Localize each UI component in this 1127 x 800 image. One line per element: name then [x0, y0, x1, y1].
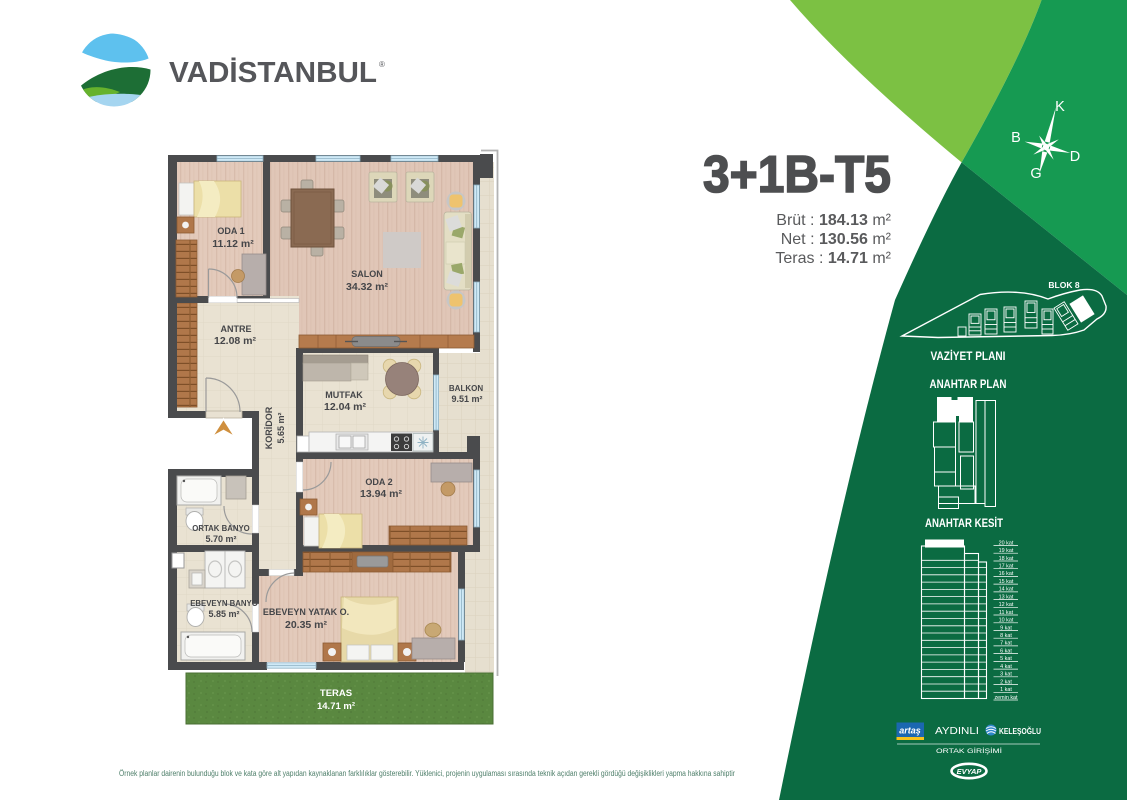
svg-text:ANTRE: ANTRE: [221, 324, 252, 334]
svg-text:5.65 m²: 5.65 m²: [276, 412, 286, 443]
svg-text:B: B: [1011, 130, 1021, 146]
svg-text:Brüt : 184.13 m²: Brüt : 184.13 m²: [776, 212, 891, 229]
svg-text:SALON: SALON: [351, 269, 383, 279]
svg-text:20.35 m²: 20.35 m²: [285, 619, 328, 631]
svg-text:34.32 m²: 34.32 m²: [346, 281, 389, 293]
svg-text:13.94 m²: 13.94 m²: [360, 488, 403, 500]
svg-text:KORİDOR: KORİDOR: [264, 406, 274, 449]
svg-text:ORTAK GİRİŞİMİ: ORTAK GİRİŞİMİ: [936, 746, 1002, 755]
svg-text:Teras : 14.71 m²: Teras : 14.71 m²: [775, 250, 891, 267]
svg-text:G: G: [1030, 166, 1041, 182]
svg-text:TERAS: TERAS: [320, 688, 352, 699]
svg-text:11.12 m²: 11.12 m²: [212, 238, 254, 250]
svg-text:EBEVEYN YATAK O.: EBEVEYN YATAK O.: [263, 607, 349, 617]
svg-text:BLOK 8: BLOK 8: [1048, 280, 1079, 290]
svg-text:14.71 m²: 14.71 m²: [317, 701, 355, 712]
svg-text:12.08 m²: 12.08 m²: [214, 335, 257, 347]
svg-text:5.85 m²: 5.85 m²: [208, 609, 239, 619]
svg-text:MUTFAK: MUTFAK: [325, 390, 363, 400]
svg-text:9.51 m²: 9.51 m²: [451, 394, 482, 404]
svg-text:3+1B-T5: 3+1B-T5: [703, 146, 891, 204]
svg-text:Net : 130.56 m²: Net : 130.56 m²: [781, 231, 892, 248]
svg-text:VADİSTANBUL: VADİSTANBUL: [169, 57, 377, 89]
svg-text:VAZİYET PLANI: VAZİYET PLANI: [931, 348, 1006, 363]
svg-text:ANAHTAR PLAN: ANAHTAR PLAN: [930, 377, 1007, 391]
svg-text:KELEŞOĞLU: KELEŞOĞLU: [999, 725, 1041, 736]
svg-text:12.04 m²: 12.04 m²: [324, 401, 367, 413]
svg-text:ODA 2: ODA 2: [365, 477, 392, 487]
svg-text:BALKON: BALKON: [449, 384, 483, 393]
svg-text:®: ®: [379, 60, 385, 69]
svg-text:Örnek planlar dairenin bulundu: Örnek planlar dairenin bulunduğu blok ve…: [119, 769, 735, 778]
svg-text:K: K: [1055, 99, 1065, 115]
svg-text:ORTAK BANYO: ORTAK BANYO: [192, 524, 249, 533]
svg-text:artaş: artaş: [899, 726, 921, 736]
svg-text:5.70 m²: 5.70 m²: [205, 534, 236, 544]
svg-text:ANAHTAR KESİT: ANAHTAR KESİT: [925, 515, 1004, 530]
svg-text:ODA 1: ODA 1: [217, 226, 244, 236]
svg-text:EVYAP: EVYAP: [957, 767, 983, 776]
svg-text:AYDINLI: AYDINLI: [935, 726, 979, 737]
svg-text:D: D: [1070, 149, 1080, 165]
svg-text:EBEVEYN BANYO: EBEVEYN BANYO: [190, 599, 258, 608]
